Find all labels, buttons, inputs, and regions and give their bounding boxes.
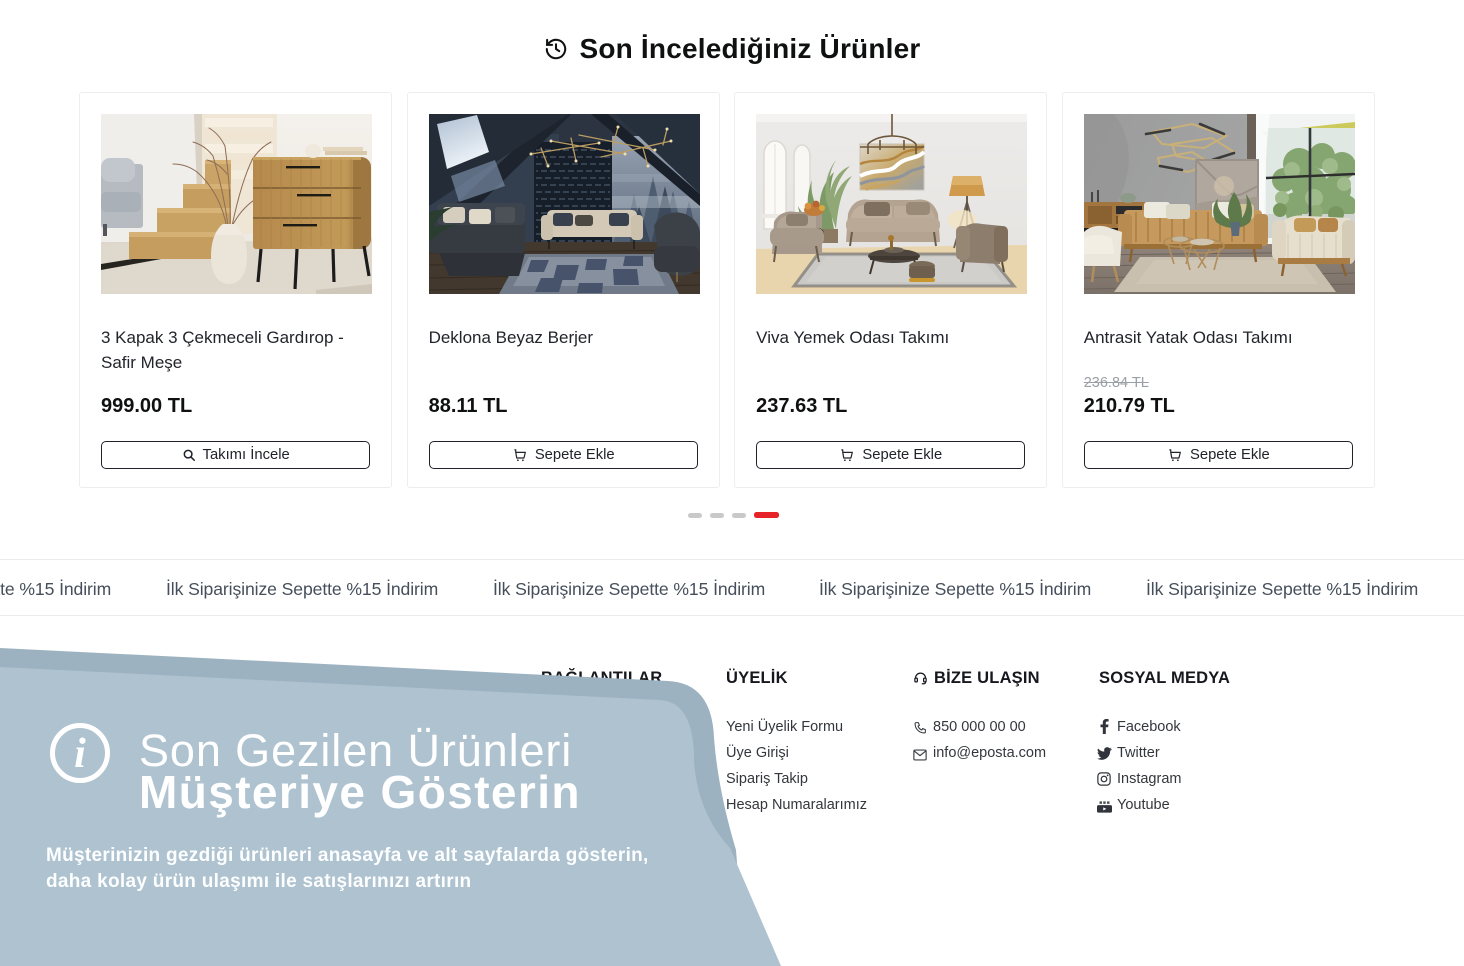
svg-text:i: i bbox=[74, 731, 86, 777]
